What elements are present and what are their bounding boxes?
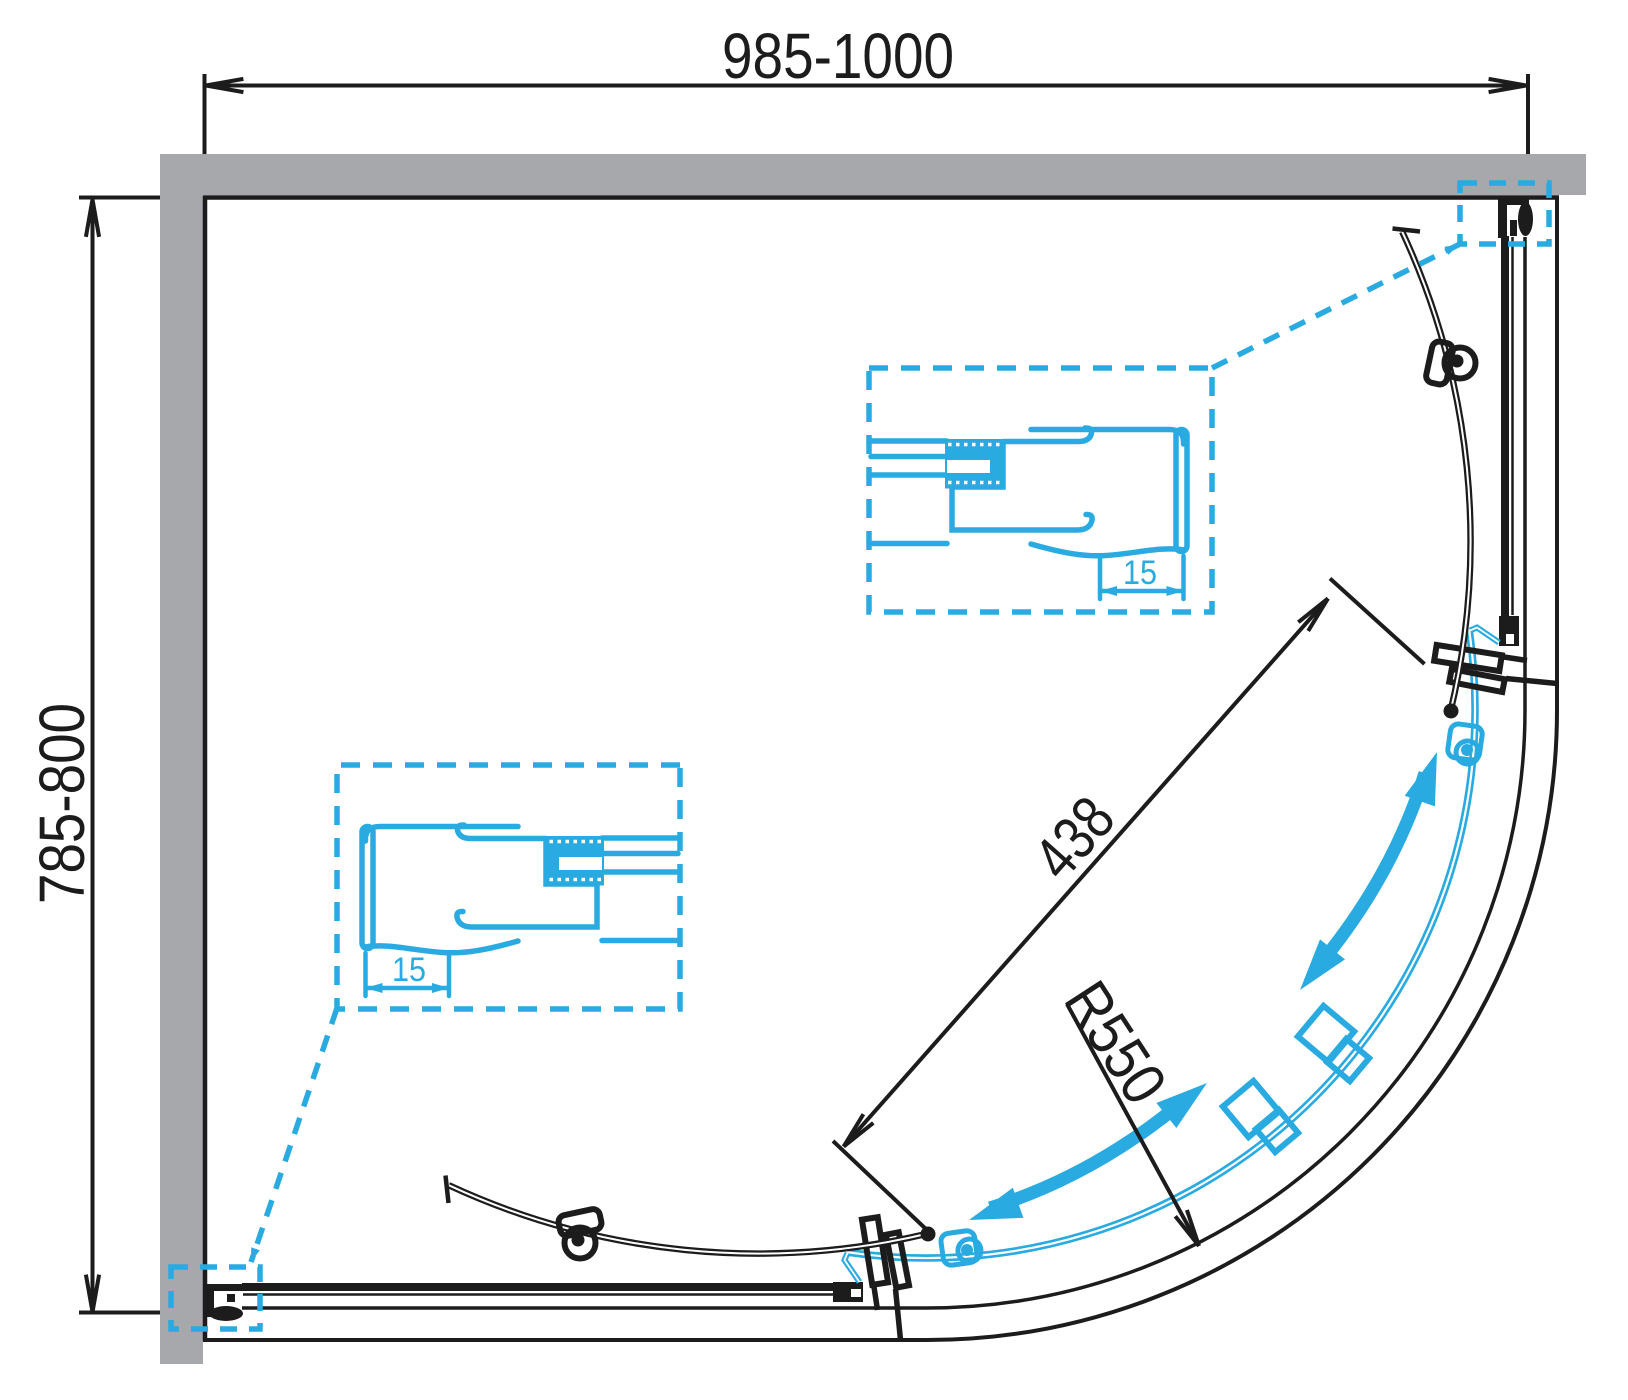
svg-text:15: 15 — [1123, 554, 1157, 592]
svg-text:15: 15 — [392, 951, 426, 989]
svg-text:985-1000: 985-1000 — [722, 20, 954, 92]
svg-text:785-800: 785-800 — [26, 703, 98, 904]
